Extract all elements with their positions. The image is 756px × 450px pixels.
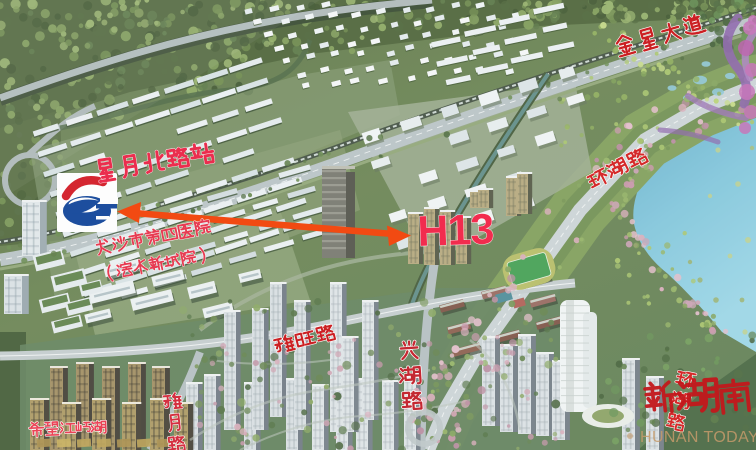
svg-text:H13: H13 xyxy=(417,205,495,256)
svg-text:HUNAN TODAY: HUNAN TODAY xyxy=(640,429,756,446)
